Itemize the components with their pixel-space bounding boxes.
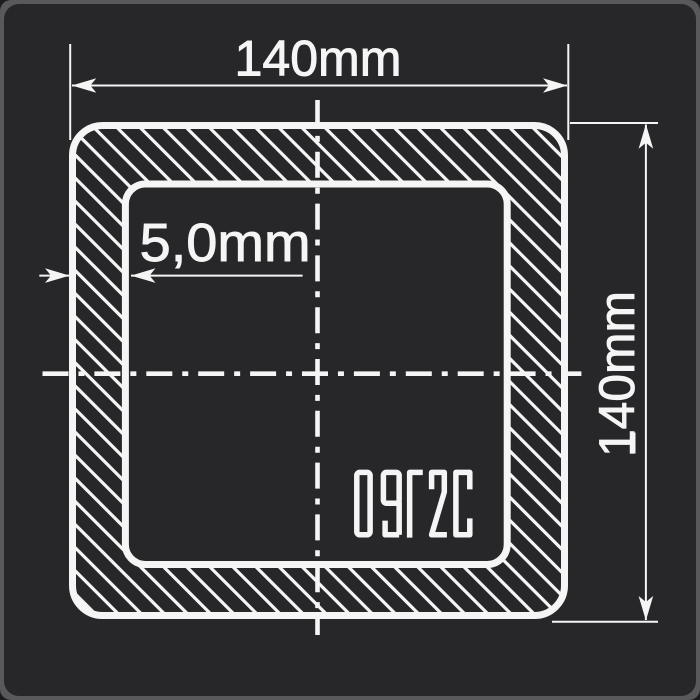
svg-text:140mm: 140mm — [235, 30, 402, 87]
svg-text:140mm: 140mm — [588, 291, 645, 457]
svg-text:5,0mm: 5,0mm — [140, 213, 311, 273]
